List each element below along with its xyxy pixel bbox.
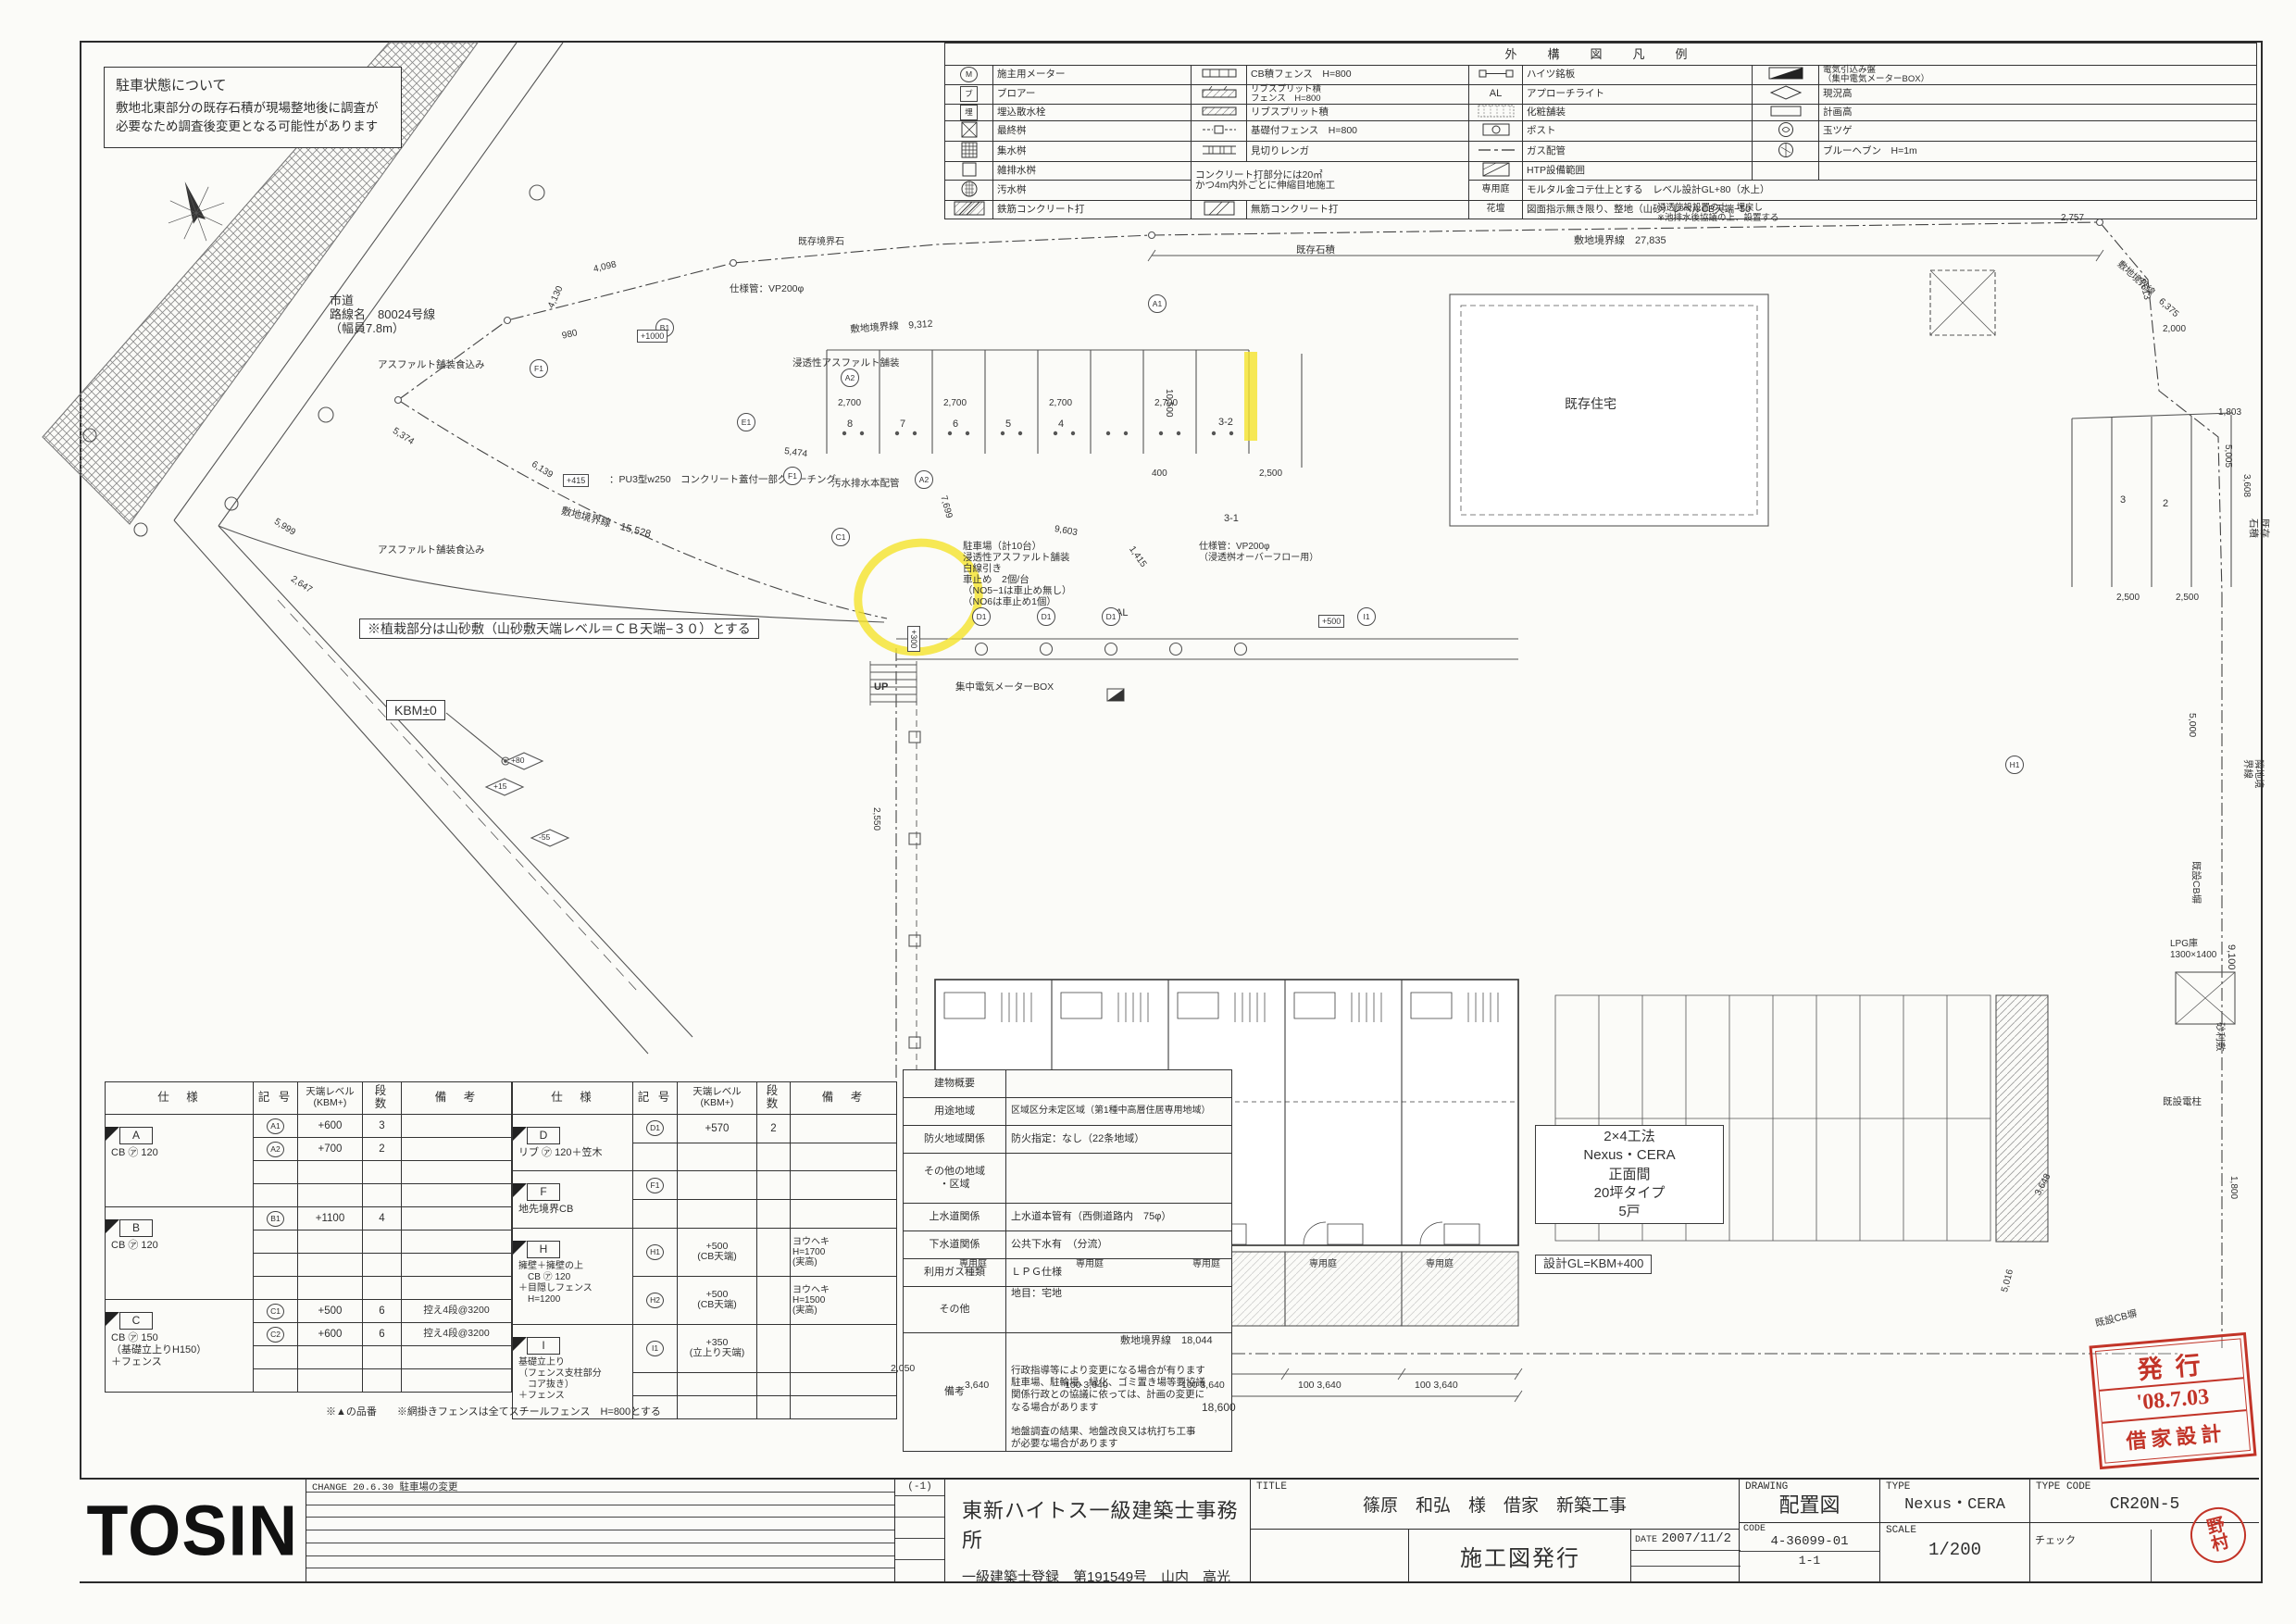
type-label: TYPE	[1880, 1480, 2029, 1493]
spec-group-H: H 擁壁＋擁壁の上 CB ㋐ 120 ＋目隠しフェンス H=1200	[513, 1228, 633, 1324]
typecode-label: TYPE CODE	[2030, 1480, 2259, 1493]
level-value: +500 (CB天端)	[678, 1276, 757, 1324]
summary-value: 行政指導等により変更になる場合が有ります 駐車場、駐輪場、緑化、ゴミ置き場等要協…	[1006, 1333, 1232, 1452]
summary-value: 上水道本管有（西側道路内 75φ）	[1006, 1204, 1232, 1231]
spec-footnote: ※▲の品番 ※網掛きフェンスは全てスチールフェンス H=800とする	[326, 1404, 661, 1418]
boxtree-icon	[1753, 120, 1819, 141]
stall-number: 7	[900, 418, 905, 431]
remark-value	[402, 1207, 512, 1230]
dim-label: 3,608	[2241, 474, 2252, 497]
kbm-label: KBM±0	[386, 700, 445, 720]
steps-value	[757, 1171, 791, 1200]
steps-value: 2	[757, 1115, 791, 1143]
summary-label: 備考	[904, 1333, 1006, 1452]
level-tag: +1000	[637, 330, 668, 343]
vp-label: 仕様管：VP200φ	[730, 283, 804, 294]
private-garden-key: 専用庭	[1469, 180, 1523, 200]
dim-label: 2,500	[2176, 593, 2199, 604]
cb-wall-label: 既設CB塀	[2190, 861, 2202, 904]
dim-label: 5,005	[2223, 444, 2234, 468]
ribsplit-hatch-icon	[1192, 104, 1247, 120]
up-label: UP	[874, 681, 888, 693]
dim-label: 100 3,640	[1298, 1380, 1341, 1391]
remark-value	[791, 1115, 897, 1143]
drawing-label: DRAWING	[1740, 1480, 1879, 1493]
blueheaven-icon	[1753, 141, 1819, 161]
legend-label: 埋込散水栓	[993, 104, 1192, 120]
level-value: +600	[298, 1323, 363, 1346]
code-value: 4-36099-01	[1740, 1534, 1879, 1552]
legend-title: 外 構 図 凡 例	[945, 44, 2257, 66]
revision-mark: (-1)	[895, 1480, 944, 1496]
level-value	[678, 1171, 757, 1200]
mark-F1: F1	[646, 1178, 664, 1193]
mark-H1: H1	[646, 1244, 664, 1260]
electric-panel-icon	[1753, 66, 1819, 85]
remark-value: 控え4段@3200	[402, 1300, 512, 1323]
kbm-marker	[446, 713, 509, 765]
steps-value: 6	[363, 1323, 402, 1346]
rc-concrete-hatch-icon	[945, 200, 993, 219]
building-info-box: 2×4工法 Nexus・CERA 正面間 20坪タイプ 5戸	[1535, 1125, 1724, 1224]
wall-marker: A1	[1148, 294, 1167, 313]
product-triangle-icon	[513, 1337, 527, 1351]
planting-note: ※植栽部分は山砂敷（山砂敷天端レベル＝ＣＢ天端−３０）とする	[359, 618, 759, 639]
wall-marker: D1	[1102, 607, 1120, 626]
summary-value	[1006, 1154, 1232, 1204]
building-summary-table: 建物概要 用途地域区域区分未定区域（第1種中高層住居専用地域） 防火地域関係防火…	[903, 1069, 1232, 1452]
gutter-label: ：PU3型w250 コンクリート蓋付一部グレーチング	[609, 474, 836, 485]
steps-value: 3	[363, 1115, 402, 1138]
steps-value: 6	[363, 1300, 402, 1323]
spec-group-F: F 地先境界CB	[513, 1171, 633, 1228]
garden-label: 専用庭	[1076, 1259, 1104, 1270]
dim-label: 2,700	[943, 398, 967, 409]
mark-H2: H2	[646, 1293, 664, 1308]
level-tag: +500	[1318, 615, 1344, 628]
col-header: 段 数	[363, 1082, 402, 1115]
lpg-label: LPG庫 1300×1400	[2170, 939, 2216, 960]
date-value: 2007/11/2	[1661, 1531, 1731, 1546]
garden-label: 専用庭	[1309, 1259, 1337, 1270]
dim-label: 5,000	[2187, 713, 2198, 737]
date-label: DATE	[1631, 1535, 1657, 1545]
product-triangle-icon	[106, 1312, 119, 1326]
final-pit-x-icon	[945, 120, 993, 141]
drawing-sheet: { "sheet": {"bg":"#fbfbf8","ink":"#2e2e2…	[0, 0, 2296, 1624]
meter-box-label: 集中電気メーターBOX	[955, 681, 1054, 693]
dim-label: 2,700	[838, 398, 861, 409]
existing-house-label: 既存住宅	[1565, 396, 1616, 411]
level-tag: +415	[563, 474, 589, 487]
dim-label: 3,640	[965, 1380, 989, 1391]
dim-label: 18,600	[1202, 1402, 1236, 1415]
drawing-name: 配置図	[1740, 1493, 1879, 1523]
steps-value: 4	[363, 1207, 402, 1230]
blower-box-icon: ブ	[945, 84, 993, 104]
sewer-label: 汚水排水本配管	[831, 478, 900, 489]
level-diamonds	[486, 753, 568, 846]
col-header: 段 数	[757, 1082, 791, 1115]
lpg-box	[2176, 972, 2235, 1024]
summary-label: 下水道関係	[904, 1231, 1006, 1259]
legend-label: 雑排水桝	[993, 161, 1192, 180]
legend-label: ブロアー	[993, 84, 1192, 104]
legend-label: リブスプリット積 フェンス H=800	[1247, 84, 1469, 104]
garden-label: 専用庭	[1192, 1259, 1220, 1270]
col-header: 記 号	[633, 1082, 678, 1115]
paving-brick-icon	[1469, 104, 1523, 120]
meter-circle-icon: M	[945, 66, 993, 85]
issue-stamp: 発行 '08.7.03 借家設計	[2089, 1332, 2256, 1469]
design-gl-label: 設計GL=KBM+400	[1535, 1255, 1652, 1274]
legend-label: 鉄筋コンクリート打	[993, 200, 1192, 219]
col-header: 記 号	[254, 1082, 298, 1115]
level-value: +500	[298, 1300, 363, 1323]
dim-label: 2,000	[2163, 324, 2186, 335]
spec-group-A: A CB ㋐ 120	[106, 1115, 254, 1207]
dim-label: 400	[1152, 468, 1167, 480]
stall-number: 2	[2163, 498, 2168, 510]
wall-spec-table-2: 仕 様 記 号 天端レベル (KBM+) 段 数 備 考 D リブ ㋐ 120＋…	[512, 1081, 897, 1419]
summary-label: 上水道関係	[904, 1204, 1006, 1231]
dim-label: 9,100	[2225, 944, 2237, 970]
dim-label: 2,700	[1049, 398, 1072, 409]
level-value: +350 (立上り天端)	[678, 1324, 757, 1372]
legend-label: 玉ツゲ	[1819, 120, 2257, 141]
wall-marker: D1	[1037, 607, 1055, 626]
level-value: +500 (CB天端)	[678, 1228, 757, 1276]
check-label: チェック	[2030, 1530, 2151, 1547]
dim-label: 2,500	[1259, 468, 1282, 480]
ribsplit-fence-icon	[1192, 84, 1247, 104]
waste-pit-box-icon	[945, 161, 993, 180]
mark-D1: D1	[646, 1120, 664, 1136]
summary-value: 公共下水有 （分流）	[1006, 1231, 1232, 1259]
wall-marker: F1	[530, 359, 548, 378]
existing-level-diamond-icon	[1753, 84, 1819, 104]
level-tag: +80	[511, 756, 524, 766]
issue-type: 施工図発行	[1408, 1530, 1631, 1581]
mark-A2: A2	[267, 1142, 284, 1157]
revision-row	[306, 1556, 894, 1569]
col-header: 天端レベル (KBM+)	[298, 1082, 363, 1115]
yellow-highlight-bar	[1244, 352, 1257, 441]
legend-label: ハイツ銘板	[1523, 66, 1753, 85]
wall-marker: H1	[2005, 756, 2024, 774]
stall-number: 4	[1058, 418, 1064, 431]
legend-label: 現況高	[1819, 84, 2257, 104]
plan-level-rect-icon	[1753, 104, 1819, 120]
issue-stamp-inner: 発行 '08.7.03 借家設計	[2095, 1338, 2251, 1463]
percolation-pit-icon	[1930, 270, 1995, 335]
summary-label: 防火地域関係	[904, 1126, 1006, 1154]
remark-value	[402, 1138, 512, 1161]
scale-label: SCALE	[1880, 1523, 2029, 1536]
product-triangle-icon	[106, 1219, 119, 1233]
col-header: 仕 様	[513, 1082, 633, 1115]
product-triangle-icon	[513, 1241, 527, 1255]
legend-label: ポスト	[1523, 120, 1753, 141]
remark-value: 控え4段@3200	[402, 1323, 512, 1346]
legend-label: 計画高	[1819, 104, 2257, 120]
stone-wall-label: 既存石積	[1296, 244, 1335, 256]
spec-group-C: C CB ㋐ 150 （基礎立上りH150） ＋フェンス	[106, 1300, 254, 1393]
utility-pole-label: 既設電柱	[2163, 1096, 2202, 1107]
steps-value	[757, 1228, 791, 1276]
steps-value	[757, 1276, 791, 1324]
legend-label	[1819, 161, 2257, 180]
parking-note: 駐車場（計10台） 浸透性アスファルト舗装 白線引き 車止め 2個/台 （NO5…	[963, 541, 1072, 607]
revision-row: CHANGE 20.6.30 駐車場の変更	[306, 1480, 894, 1493]
spec-group-D: D リブ ㋐ 120＋笠木	[513, 1115, 633, 1171]
revision-row	[306, 1518, 894, 1530]
asphalt-label: アスファルト舗装食込み	[378, 544, 485, 556]
legend-label: 化粧舗装	[1523, 104, 1753, 120]
remark-value: ヨウヘキ H=1500 (実高)	[791, 1276, 897, 1324]
garden-label: 専用庭	[1426, 1259, 1454, 1270]
note-title: 駐車状態について	[116, 75, 390, 94]
vp-overflow-label: 仕様管：VP200φ （浸透桝オーバーフロー用）	[1199, 542, 1318, 563]
parking-stalls-right	[2072, 413, 2233, 587]
wall-marker: C1	[831, 528, 850, 546]
wall-marker: A2	[841, 369, 859, 387]
remark-value	[791, 1171, 897, 1200]
dim-label: 10,500	[1164, 389, 1175, 418]
summary-value: 区域区分未定区域（第1種中高層住居専用地域）	[1006, 1098, 1232, 1126]
architect-license: 一級建築士登録 第191549号 山内 高光	[962, 1567, 1250, 1586]
wall-spec-table-1: 仕 様 記 号 天端レベル (KBM+) 段 数 備 考 A CB ㋐ 120 …	[105, 1081, 512, 1393]
gravel-label: 砂利敷	[2215, 1022, 2226, 1052]
dim-label: 1,803	[2218, 407, 2241, 418]
boundary-dim-label: 敷地境界線 18,044	[1120, 1335, 1213, 1347]
summary-value: 防火指定：なし（22条地域）	[1006, 1126, 1232, 1154]
legend-label: 汚水桝	[993, 180, 1192, 200]
stall-number: 3-1	[1224, 513, 1239, 525]
legend-label: 基礎付フェンス H=800	[1247, 120, 1469, 141]
catch-basin-grid-icon	[945, 141, 993, 161]
tosin-logo: TOSIN	[87, 1490, 299, 1571]
type-value: Nexus・CERA	[1880, 1493, 2029, 1523]
title-label: TITLE	[1251, 1480, 1739, 1493]
revision-row	[306, 1505, 894, 1518]
wall-marker: A2	[915, 470, 933, 489]
summary-value	[1006, 1070, 1232, 1098]
legend-table: 外 構 図 凡 例 M 施主用メーター CB積フェンス H=800 ハイツ銘板 …	[944, 43, 2257, 219]
revision-row	[306, 1493, 894, 1505]
boundary-dim-label: 敷地境界線 27,835	[1574, 235, 1666, 247]
steps-value	[757, 1324, 791, 1372]
flowerbed-key: 花壇	[1469, 200, 1523, 219]
steps-value: 2	[363, 1138, 402, 1161]
level-value: +600	[298, 1115, 363, 1138]
htp-strip	[1996, 995, 2048, 1242]
concrete-joint-note: コンクリート打部分には20㎡ かつ4m内外ごとに伸縮目地施工	[1192, 161, 1469, 200]
code-label: CODE	[1740, 1523, 1879, 1534]
percolation-note: 浸透施設設置の上、埋戻し ※池排水後協議の上、設置する	[1657, 204, 1778, 224]
product-triangle-icon	[513, 1127, 527, 1141]
mark-C2: C2	[267, 1327, 284, 1343]
note-line2: 必要なため調査後変更となる可能性があります	[116, 118, 390, 136]
asphalt-label: アスファルト舗装食込み	[378, 359, 485, 370]
perv-asphalt-label: 浸透性アスファルト舗装	[792, 357, 900, 369]
note-line1: 敷地北東部分の既存石積が現場整地後に調査が	[116, 99, 390, 118]
stall-number-highlighted: 3-2	[1218, 417, 1233, 429]
dim-label: 2,050	[891, 1363, 915, 1374]
col-header: 天端レベル (KBM+)	[678, 1082, 757, 1115]
remark-value: ヨウヘキ H=1700 (実高)	[791, 1228, 897, 1276]
legend-label: 電気引込み盤 （集中電気メーターBOX）	[1819, 66, 2257, 85]
legend-label: 見切りレンガ	[1247, 141, 1469, 161]
remark-value	[791, 1324, 897, 1372]
dim-label: 100 3,640	[1181, 1380, 1225, 1391]
spec-group-B: B CB ㋐ 120	[106, 1207, 254, 1300]
private-garden-spec: モルタル金コテ仕上とする レベル設計GL+80（水上）	[1523, 180, 2257, 200]
mark-A1: A1	[267, 1118, 284, 1134]
legend-label: リブスプリット積	[1247, 104, 1469, 120]
garden-label: 専用庭	[959, 1259, 987, 1270]
boundary-stone-label: 既存境界石	[798, 237, 844, 248]
product-triangle-icon	[513, 1183, 527, 1197]
cb-fence-icon	[1192, 66, 1247, 85]
parking-status-note-box: 駐車状態について 敷地北東部分の既存石積が現場整地後に調査が 必要なため調査後変…	[104, 67, 402, 148]
dim-label: 2,757	[2061, 213, 2084, 224]
scale-value: 1/200	[1880, 1536, 2029, 1560]
legend-label: ブルーヘブン H=1m	[1819, 141, 2257, 161]
stone-wall-label: 既存石積	[2248, 518, 2270, 544]
stall-number: 3	[2120, 494, 2126, 506]
level-value: +1100	[298, 1207, 363, 1230]
stall-number: 5	[1005, 418, 1011, 431]
summary-label: その他の地域 ・区域	[904, 1154, 1006, 1204]
approach-light-icon: AL	[1469, 84, 1523, 104]
dim-label: 1,800	[2228, 1176, 2240, 1199]
mark-C1: C1	[267, 1304, 284, 1319]
project-title: 篠原 和弘 様 借家 新築工事	[1251, 1493, 1739, 1524]
summary-value: 地目：宅地	[1006, 1287, 1232, 1333]
col-header: 仕 様	[106, 1082, 254, 1115]
level-tag: +15	[493, 782, 506, 792]
nameplate-icon	[1469, 66, 1523, 85]
wall-marker: I1	[1357, 607, 1376, 626]
revision-row	[306, 1568, 894, 1581]
legend-label: 集水桝	[993, 141, 1192, 161]
dim-label: 2,500	[2116, 593, 2140, 604]
architect-office-name: 東新ハイトス一級建築士事務所	[962, 1494, 1250, 1554]
legend-label: 無筋コンクリート打	[1247, 200, 1469, 219]
plain-concrete-hatch-icon	[1192, 200, 1247, 219]
legend-label: HTP設備範囲	[1523, 161, 1753, 180]
legend-label: CB積フェンス H=800	[1247, 66, 1469, 85]
product-triangle-icon	[106, 1127, 119, 1141]
electric-panel-icon	[1107, 689, 1124, 701]
col-header: 備 考	[791, 1082, 897, 1115]
adjacent-boundary-label: 隣地境界線	[2242, 759, 2265, 791]
gas-pipe-icon	[1469, 141, 1523, 161]
wall-marker: E1	[737, 413, 755, 431]
remark-value	[402, 1115, 512, 1138]
level-tag: +300	[907, 626, 920, 652]
htp-range-icon	[1469, 161, 1523, 180]
post-icon	[1469, 120, 1523, 141]
summary-label: 建物概要	[904, 1070, 1006, 1098]
summary-label: 利用ガス種類	[904, 1259, 1006, 1287]
legend-label: ガス配管	[1523, 141, 1753, 161]
sewage-pit-circle-icon	[945, 180, 993, 200]
legend-label: 最終桝	[993, 120, 1192, 141]
legend-label: アプローチライト	[1523, 84, 1753, 104]
title-block: TOSIN CHANGE 20.6.30 駐車場の変更 (-1) 東新ハイトス一…	[80, 1478, 2259, 1581]
revision-row	[306, 1543, 894, 1556]
level-value: +570	[678, 1115, 757, 1143]
wall-marker: F1	[783, 467, 802, 485]
foundation-fence-icon	[1192, 120, 1247, 141]
dim-label: 100 3,640	[1415, 1380, 1458, 1391]
flowerbed-spec: 図面指示無き限り、整地（山砂）レベルCB天端−50	[1523, 200, 2257, 219]
road-name-label: 市道 路線名 80024号線 （幅員7.8m）	[330, 294, 435, 336]
sprinkler-box-icon: 埋	[945, 104, 993, 120]
level-tag: -55	[539, 833, 550, 843]
dim-label: 100 3,640	[1065, 1380, 1108, 1391]
mark-B1: B1	[267, 1211, 284, 1227]
summary-label: その他	[904, 1287, 1006, 1333]
summary-label: 用途地域	[904, 1098, 1006, 1126]
dim-label: 2,550	[871, 807, 882, 831]
approach-walkway	[896, 639, 1518, 659]
wall-marker: D1	[972, 607, 991, 626]
legend-label: 施主用メーター	[993, 66, 1192, 85]
revision-row	[306, 1530, 894, 1543]
level-value: +700	[298, 1138, 363, 1161]
mark-I1: I1	[646, 1341, 664, 1356]
col-header: 備 考	[402, 1082, 512, 1115]
edge-brick-icon	[1192, 141, 1247, 161]
sheet-number: 1-1	[1740, 1552, 1879, 1568]
stall-number: 6	[953, 418, 958, 431]
stall-number: 8	[847, 418, 853, 431]
